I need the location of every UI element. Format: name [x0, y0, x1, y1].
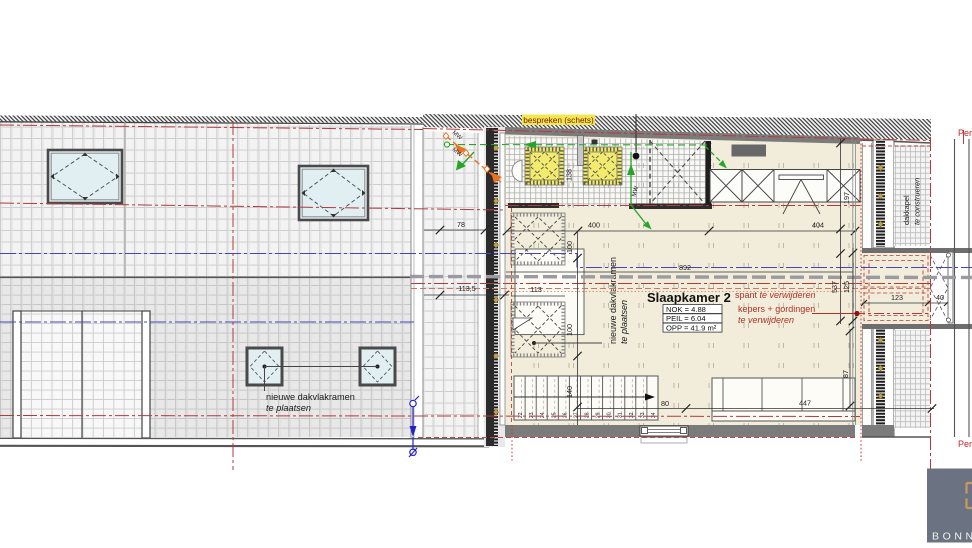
svg-text:113: 113	[530, 285, 541, 294]
svg-text:140: 140	[565, 386, 574, 398]
svg-text:Perceel: Perceel	[958, 128, 972, 138]
svg-text:24: 24	[540, 412, 546, 418]
svg-text:te verwijderen: te verwijderen	[738, 315, 794, 325]
svg-text:30: 30	[607, 412, 613, 418]
svg-text:892: 892	[679, 263, 691, 272]
svg-text:33: 33	[640, 412, 646, 418]
svg-text:34: 34	[651, 412, 657, 418]
svg-text:400: 400	[588, 221, 600, 230]
svg-text:447: 447	[799, 399, 811, 408]
svg-text:PEIL = 6.04: PEIL = 6.04	[666, 314, 706, 323]
svg-text:23: 23	[529, 412, 535, 418]
svg-text:32: 32	[629, 412, 635, 418]
svg-text:te construeren: te construeren	[913, 178, 922, 225]
svg-text:125: 125	[842, 281, 851, 293]
svg-text:113,5: 113,5	[458, 284, 475, 293]
svg-text:nieuwe dakvlakramen: nieuwe dakvlakramen	[608, 257, 618, 344]
svg-text:404: 404	[812, 221, 824, 230]
svg-text:78: 78	[457, 220, 465, 229]
svg-text:BONNE: BONNE	[932, 531, 972, 543]
svg-text:22: 22	[518, 412, 524, 418]
svg-text:nieuwe dakvlakramen: nieuwe dakvlakramen	[266, 392, 355, 402]
svg-text:25: 25	[551, 412, 557, 418]
svg-text:138: 138	[565, 169, 574, 181]
svg-text:Perceel: Perceel	[958, 439, 972, 449]
svg-text:100: 100	[565, 324, 574, 336]
svg-text:spant te verwijderen: spant te verwijderen	[735, 290, 816, 300]
svg-text:te plaatsen: te plaatsen	[619, 300, 629, 344]
svg-text:Slaapkamer 2: Slaapkamer 2	[647, 290, 731, 305]
svg-text:27: 27	[573, 412, 579, 418]
svg-text:te plaatsen: te plaatsen	[266, 403, 311, 413]
svg-text:NOK = 4.88: NOK = 4.88	[666, 305, 706, 314]
svg-text:dakkapel: dakkapel	[902, 195, 911, 225]
svg-text:kepers + gordingen: kepers + gordingen	[738, 304, 815, 314]
svg-text:100: 100	[565, 241, 574, 253]
svg-text:87: 87	[841, 370, 850, 378]
svg-text:80: 80	[661, 399, 669, 408]
svg-text:197: 197	[842, 192, 851, 204]
svg-text:26: 26	[562, 412, 568, 418]
svg-text:bespreken (schets): bespreken (schets)	[523, 115, 594, 125]
svg-text:OPP = 41.9 m²: OPP = 41.9 m²	[666, 323, 717, 332]
svg-text:28: 28	[585, 412, 591, 418]
svg-text:31: 31	[618, 412, 624, 418]
svg-text:537: 537	[830, 281, 839, 293]
svg-text:29: 29	[596, 412, 602, 418]
svg-text:123: 123	[891, 293, 903, 302]
